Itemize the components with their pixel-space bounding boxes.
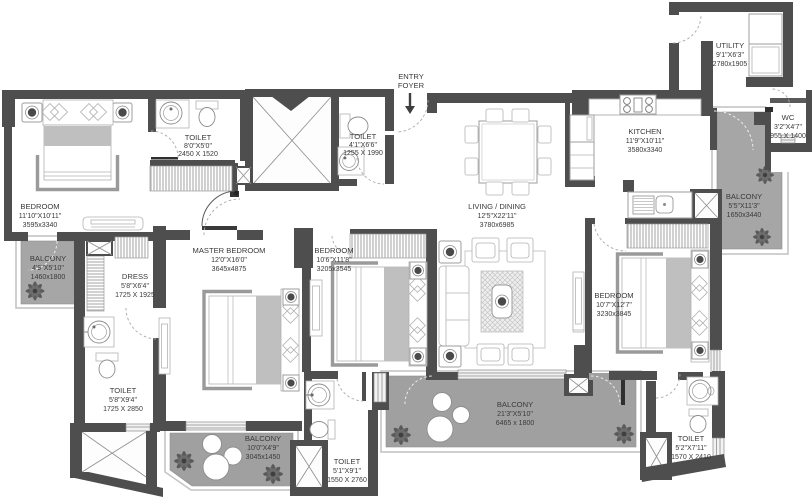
svg-text:1650x3440: 1650x3440 <box>727 212 762 219</box>
svg-text:DRESS: DRESS <box>122 272 148 281</box>
svg-text:TOILET: TOILET <box>334 457 361 466</box>
svg-text:5'1"X9'1": 5'1"X9'1" <box>333 468 361 475</box>
svg-text:11'9"X10'11": 11'9"X10'11" <box>626 138 665 145</box>
svg-text:5'2"X7'11": 5'2"X7'11" <box>675 445 707 452</box>
svg-text:3'2"X4'7": 3'2"X4'7" <box>774 124 802 131</box>
svg-text:TOILET: TOILET <box>185 133 212 142</box>
svg-text:10'6"X11'8": 10'6"X11'8" <box>316 257 352 264</box>
svg-text:1255 X 1990: 1255 X 1990 <box>343 150 383 157</box>
svg-text:2450 X 1520: 2450 X 1520 <box>178 151 218 158</box>
svg-text:6465 x 1800: 6465 x 1800 <box>496 420 535 427</box>
svg-text:1570 X 2410: 1570 X 2410 <box>671 454 711 461</box>
svg-text:WC: WC <box>782 113 795 122</box>
svg-text:8'0"X5'0": 8'0"X5'0" <box>184 143 212 150</box>
svg-text:10'7"X12'7": 10'7"X12'7" <box>596 302 632 309</box>
svg-text:FOYER: FOYER <box>398 81 425 90</box>
svg-text:BEDROOM: BEDROOM <box>314 246 353 255</box>
svg-text:3580x3340: 3580x3340 <box>628 147 663 154</box>
svg-text:3230x3845: 3230x3845 <box>597 311 632 318</box>
svg-text:1725 X 2850: 1725 X 2850 <box>103 406 143 413</box>
svg-text:4'1"X6'6": 4'1"X6'6" <box>349 142 377 149</box>
svg-text:12'5"X22'11": 12'5"X22'11" <box>477 213 517 220</box>
svg-text:5'8"X6'4": 5'8"X6'4" <box>121 283 149 290</box>
svg-text:TOILET: TOILET <box>350 132 377 141</box>
svg-text:LIVING / DINING: LIVING / DINING <box>468 202 526 211</box>
svg-text:TOILET: TOILET <box>678 434 705 443</box>
svg-text:BALCONY: BALCONY <box>245 434 281 443</box>
svg-text:10'0"X4'9": 10'0"X4'9" <box>247 445 279 452</box>
svg-text:BEDROOM: BEDROOM <box>20 202 59 211</box>
svg-text:1725 X 1925: 1725 X 1925 <box>115 292 155 299</box>
svg-text:9'1"X6'3": 9'1"X6'3" <box>716 52 744 59</box>
svg-text:2780x1905: 2780x1905 <box>713 61 748 68</box>
svg-text:ENTRY: ENTRY <box>398 72 424 81</box>
svg-text:BALCONY: BALCONY <box>30 254 66 263</box>
svg-text:11'10"X10'11": 11'10"X10'11" <box>19 213 62 220</box>
svg-text:12'0"X16'0": 12'0"X16'0" <box>211 257 247 264</box>
svg-text:955 X 1400: 955 X 1400 <box>770 133 806 140</box>
svg-text:3645x4875: 3645x4875 <box>212 266 247 273</box>
svg-text:3205x3545: 3205x3545 <box>317 266 352 273</box>
svg-text:UTILITY: UTILITY <box>716 41 744 50</box>
svg-text:BALCONY: BALCONY <box>497 400 533 409</box>
svg-text:BEDROOM: BEDROOM <box>594 291 633 300</box>
svg-text:3780x6985: 3780x6985 <box>480 222 515 229</box>
svg-text:KITCHEN: KITCHEN <box>628 127 661 136</box>
svg-text:1550 X 2760: 1550 X 2760 <box>327 477 367 484</box>
svg-text:3045x1450: 3045x1450 <box>246 454 281 461</box>
svg-text:TOILET: TOILET <box>110 386 137 395</box>
svg-text:3595x3340: 3595x3340 <box>23 222 58 229</box>
svg-text:1460x1800: 1460x1800 <box>31 274 66 281</box>
svg-text:BALCONY: BALCONY <box>726 192 762 201</box>
svg-text:5'8"X9'4": 5'8"X9'4" <box>109 397 137 404</box>
svg-text:21'3"X5'10": 21'3"X5'10" <box>497 411 533 418</box>
svg-text:MASTER BEDROOM: MASTER BEDROOM <box>193 246 266 255</box>
svg-text:5'5"X11'3": 5'5"X11'3" <box>728 203 760 210</box>
